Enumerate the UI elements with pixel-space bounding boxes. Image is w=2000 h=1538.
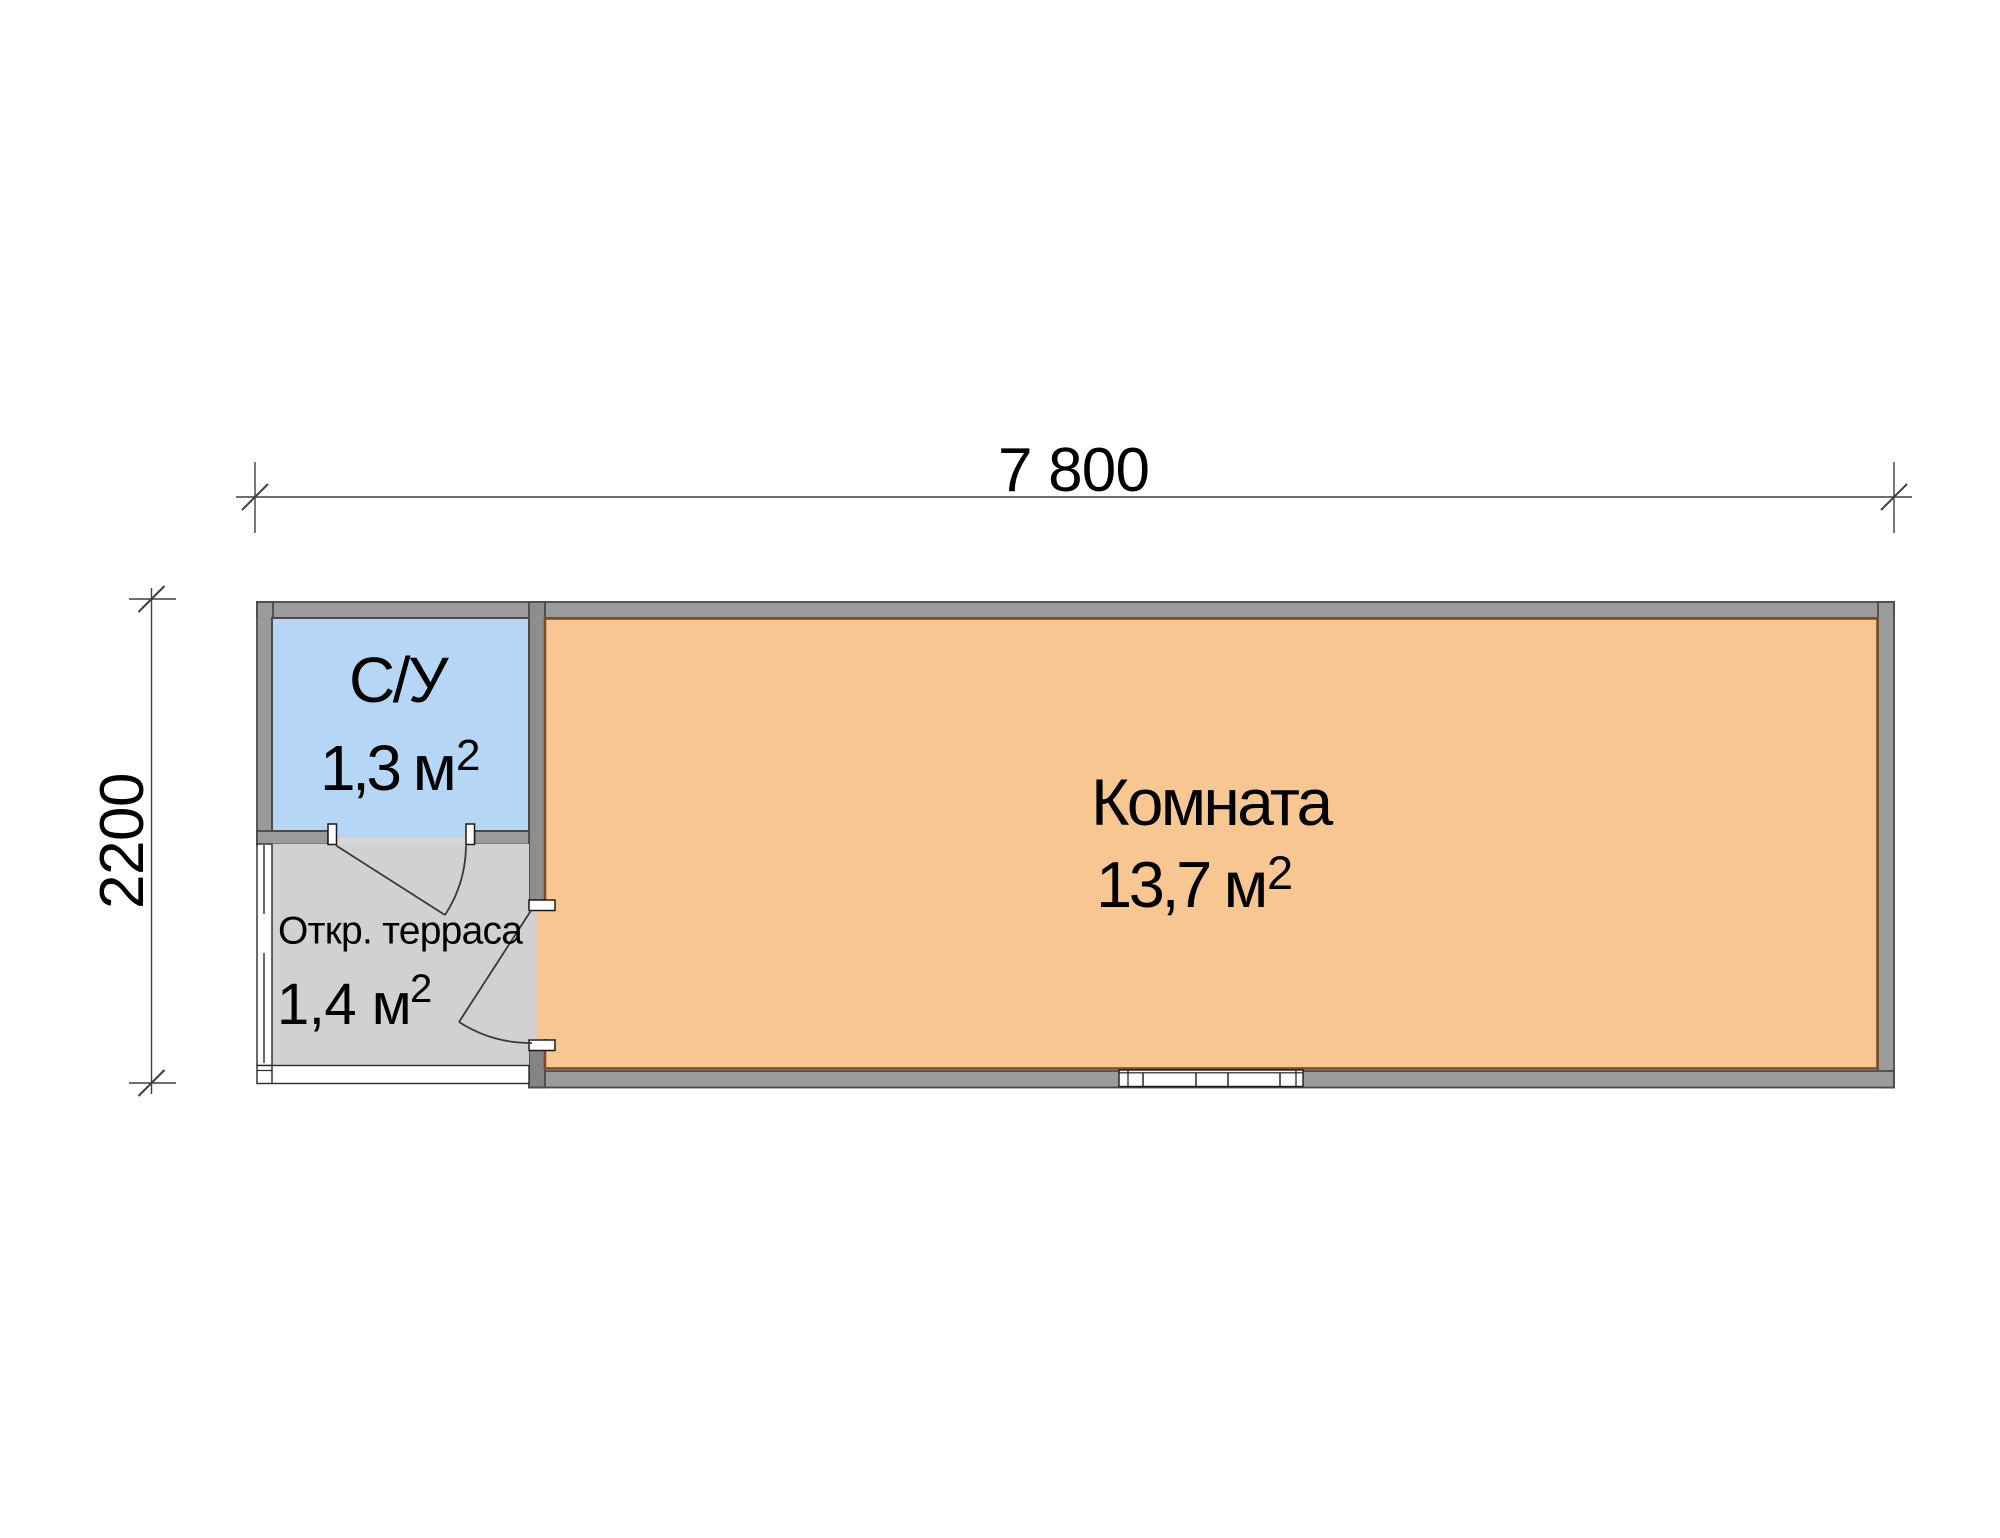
svg-text:С/У: С/У: [349, 644, 449, 716]
svg-text:2200: 2200: [88, 773, 157, 909]
svg-text:Откр. терраса: Откр. терраса: [278, 910, 523, 953]
svg-text:2: 2: [1267, 846, 1293, 899]
svg-text:Комната: Комната: [1091, 765, 1334, 839]
svg-text:1,4 м: 1,4 м: [277, 972, 411, 1037]
svg-text:2: 2: [456, 731, 480, 780]
svg-text:2: 2: [410, 967, 432, 1011]
svg-text:13,7 м: 13,7 м: [1096, 848, 1265, 921]
svg-text:1,3 м: 1,3 м: [320, 732, 453, 804]
svg-text:7 800: 7 800: [998, 436, 1149, 505]
